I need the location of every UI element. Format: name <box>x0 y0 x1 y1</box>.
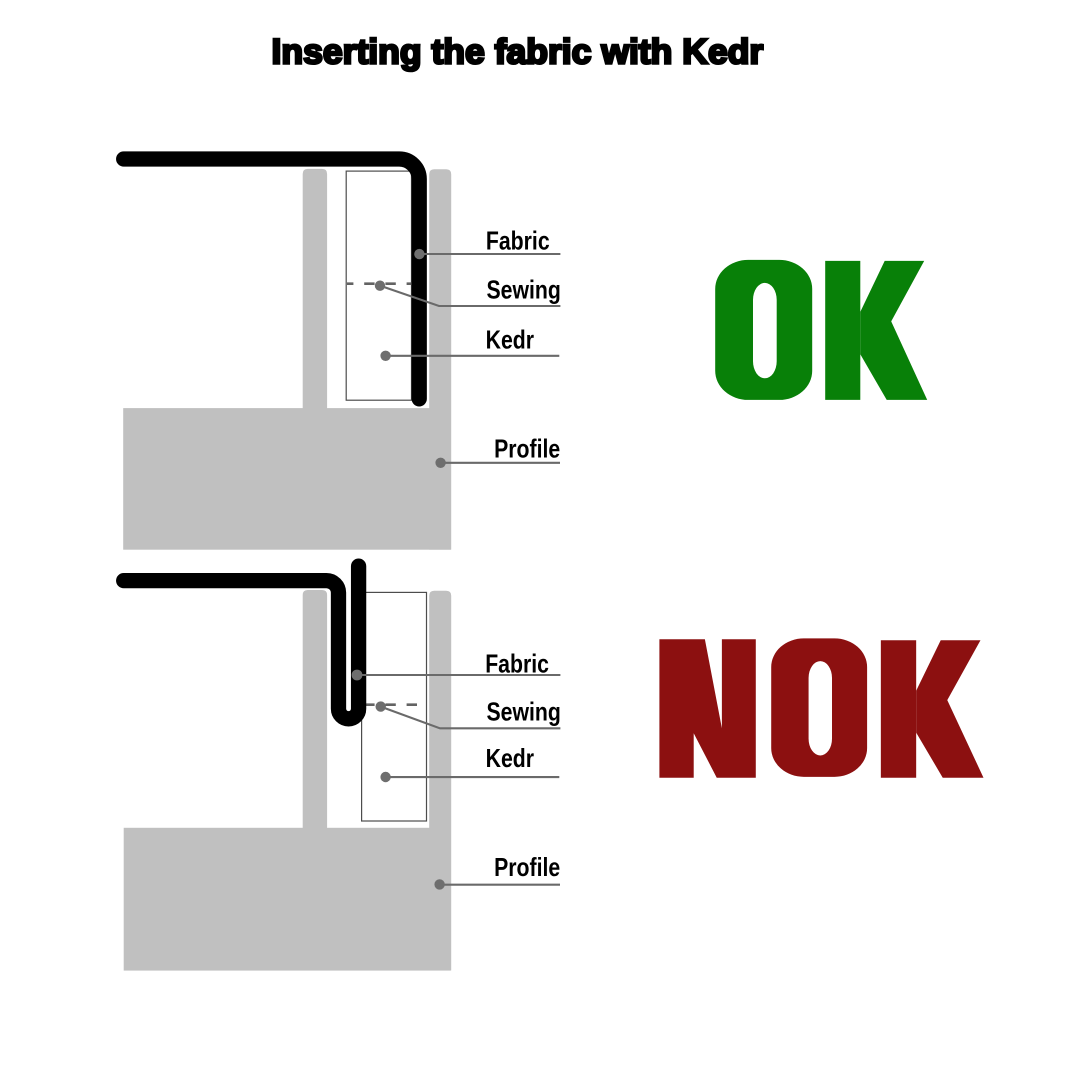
svg-text:Sewing: Sewing <box>487 276 561 304</box>
svg-text:Fabric: Fabric <box>485 649 549 677</box>
svg-text:Fabric: Fabric <box>486 227 550 255</box>
svg-text:Profile: Profile <box>494 435 560 463</box>
svg-text:Sewing: Sewing <box>487 698 561 726</box>
svg-text:Profile: Profile <box>494 853 560 881</box>
svg-text:Kedr: Kedr <box>486 326 534 354</box>
svg-text:Inserting the fabric with Kedr: Inserting the fabric with Kedr <box>272 33 764 72</box>
svg-text:Kedr: Kedr <box>486 744 534 772</box>
